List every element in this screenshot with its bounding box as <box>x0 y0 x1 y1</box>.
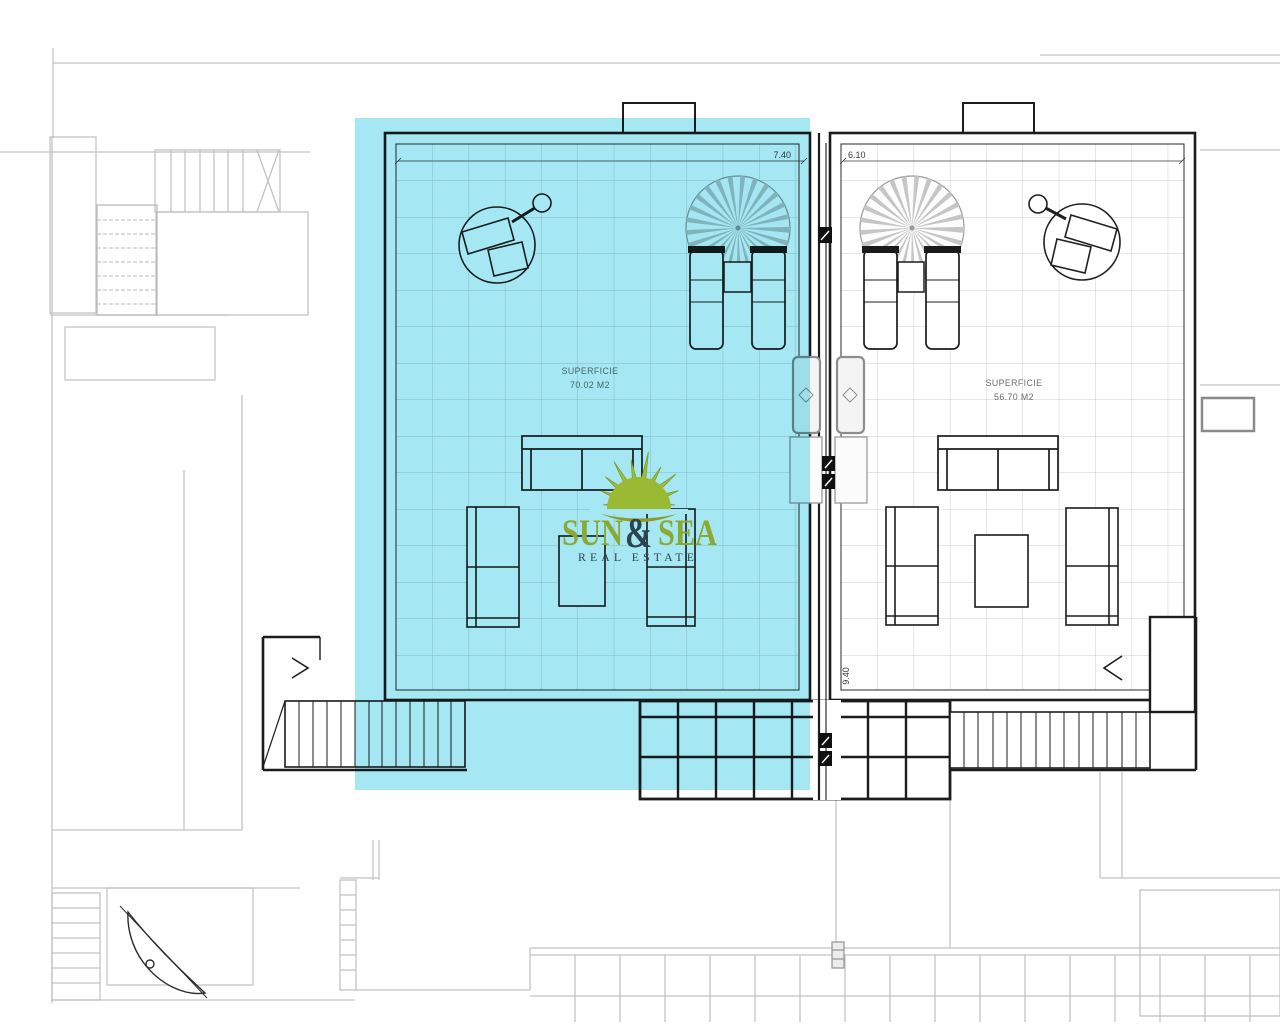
coffee-table-icon <box>975 535 1028 607</box>
bottom-right-rooms <box>1100 772 1280 1016</box>
right-edge-lines <box>1200 150 1280 431</box>
bottom-structure <box>340 800 1280 1022</box>
sofa-icon <box>938 436 1058 490</box>
side-table-icon <box>898 262 924 292</box>
dimension-label-right-width: 6.10 <box>848 150 866 160</box>
ledge <box>1202 398 1254 431</box>
stair-direction-arrow <box>292 658 308 678</box>
area-value-right: 56.70 M2 <box>994 392 1034 402</box>
stairs-top-left-lower <box>97 205 157 315</box>
crescent-object-icon <box>120 906 207 998</box>
chimney-box <box>963 103 1034 133</box>
highlight-overlay <box>355 118 810 790</box>
dimension-label-right-depth: 9.40 <box>841 667 851 685</box>
floor-plan: 7.40 SUPERFICIE 70.02 M2 <box>0 0 1280 1024</box>
stairs-top-left <box>155 150 280 212</box>
right-terrace: 6.10 9.40 SUPERFICIE 56.70 M2 <box>830 103 1195 700</box>
bottom-left-rooms <box>52 888 355 1000</box>
area-label-right: SUPERFICIE <box>986 378 1043 388</box>
floor-plan-canvas: 7.40 SUPERFICIE 70.02 M2 <box>0 0 1280 1024</box>
